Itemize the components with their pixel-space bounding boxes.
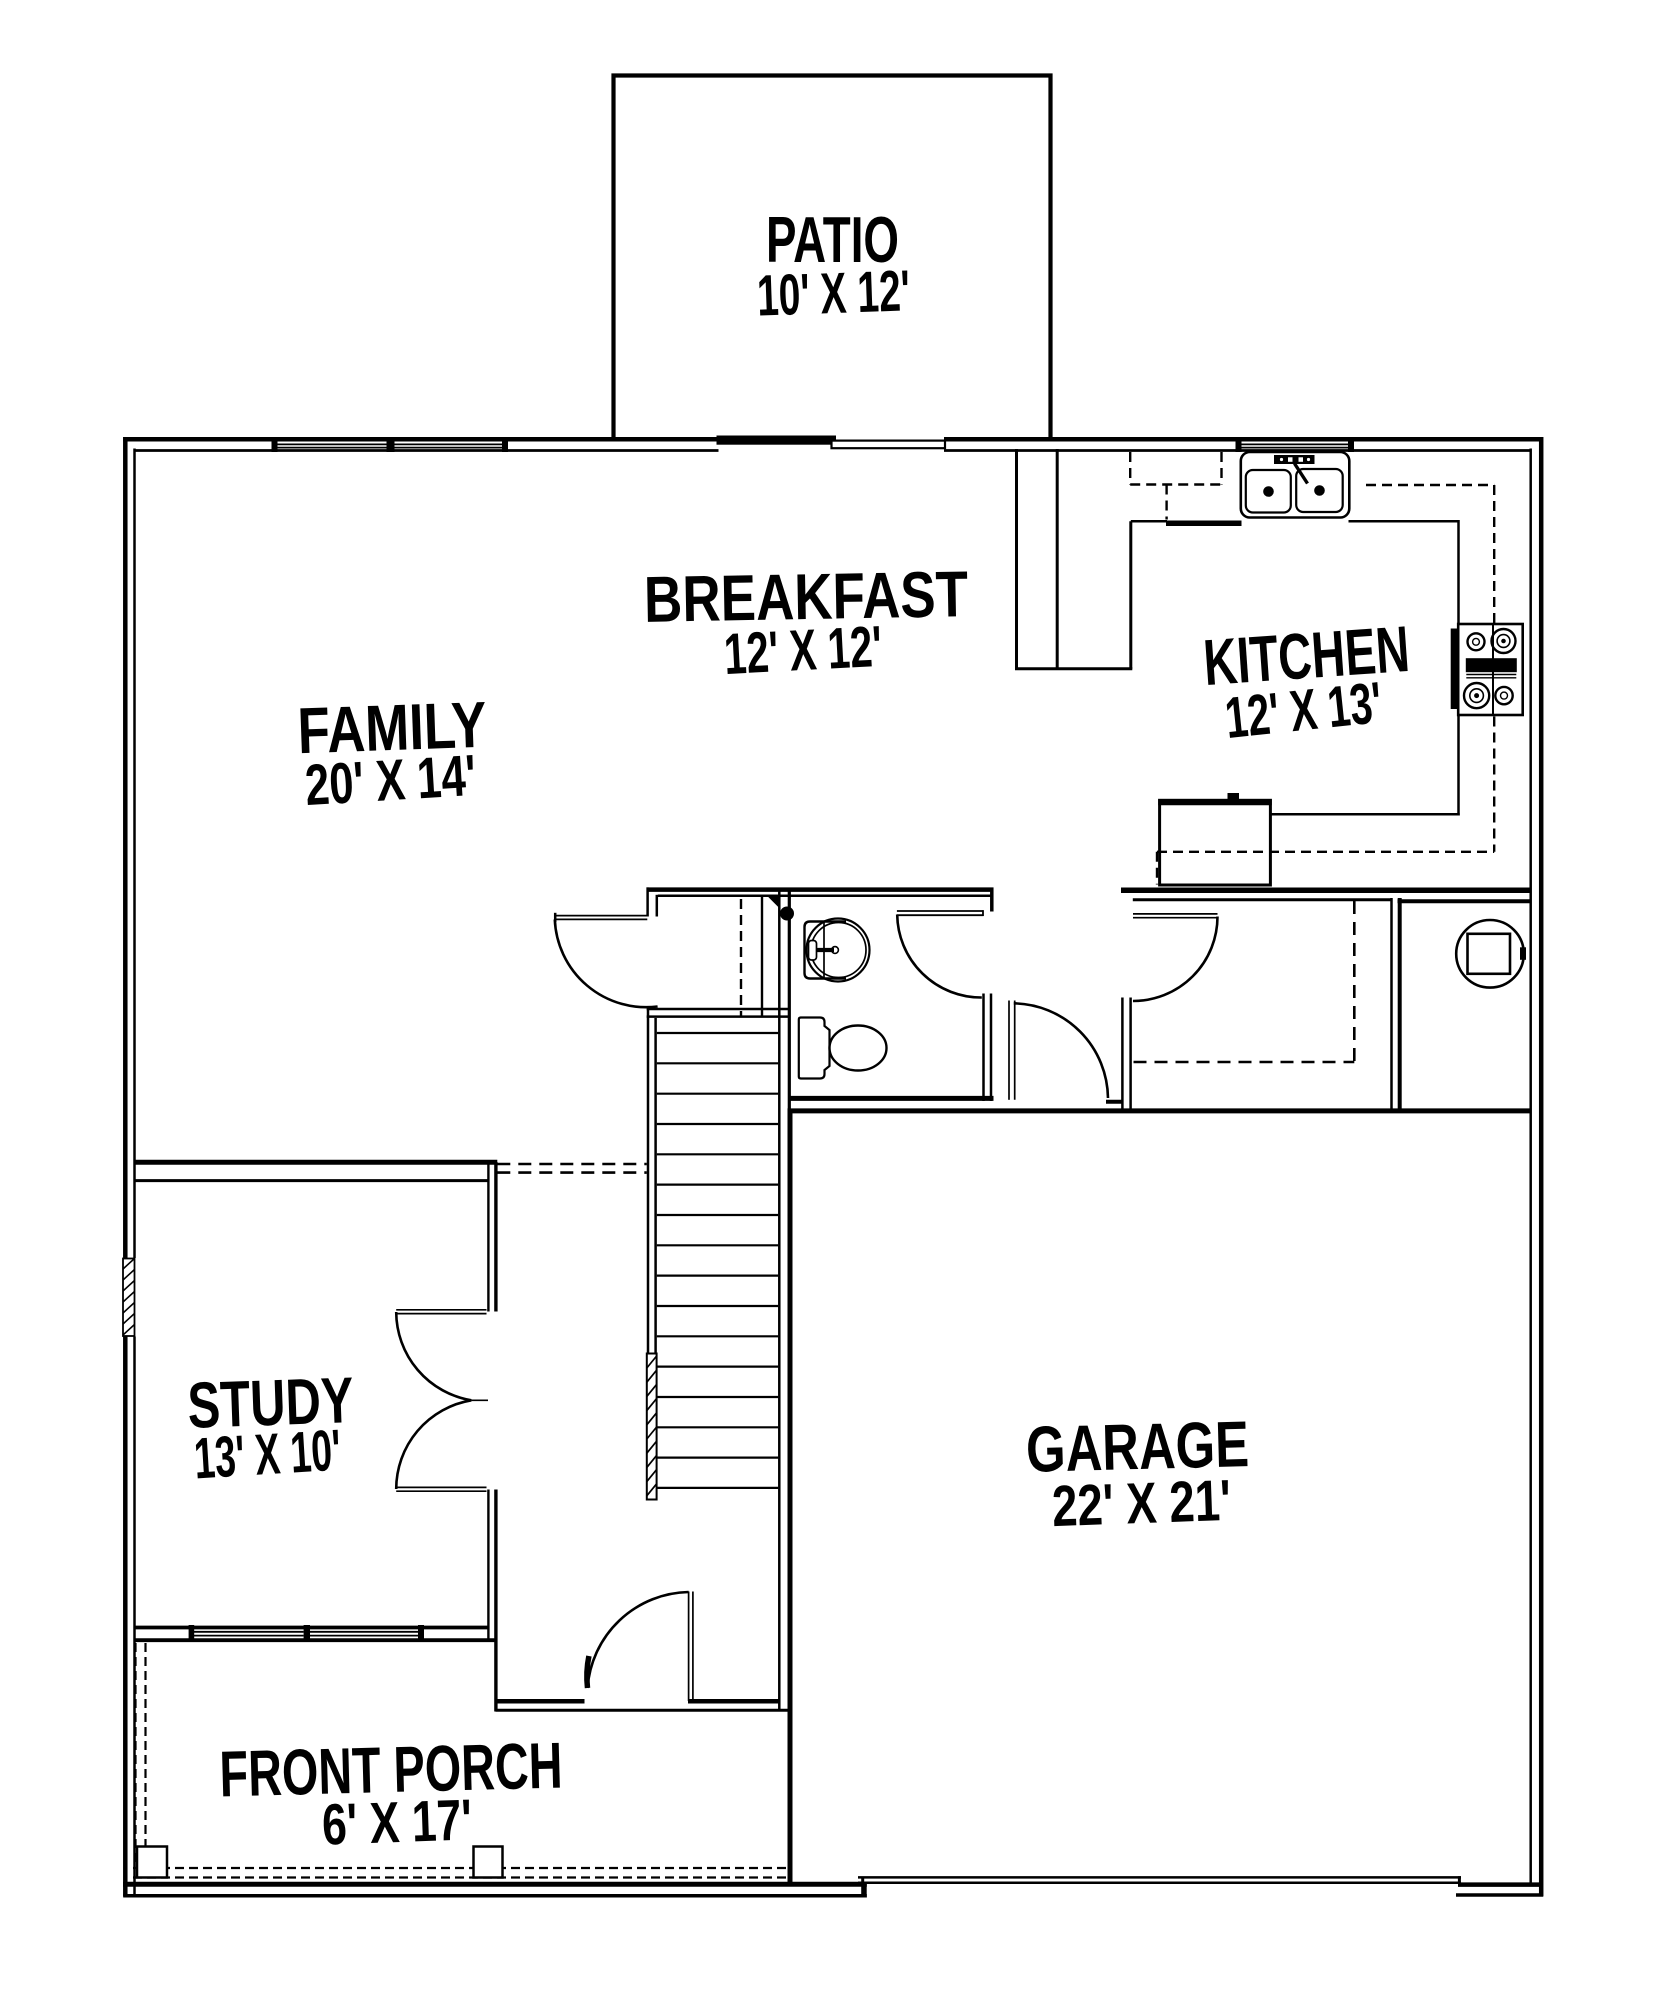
svg-text:20' X 14': 20' X 14' — [303, 743, 478, 818]
svg-text:12' X 12': 12' X 12' — [722, 614, 883, 687]
svg-text:13' X 10': 13' X 10' — [192, 1418, 343, 1492]
svg-text:22' X 21': 22' X 21' — [1051, 1468, 1232, 1539]
svg-text:6' X 17': 6' X 17' — [321, 1787, 473, 1857]
svg-text:10' X 12': 10' X 12' — [756, 258, 911, 328]
